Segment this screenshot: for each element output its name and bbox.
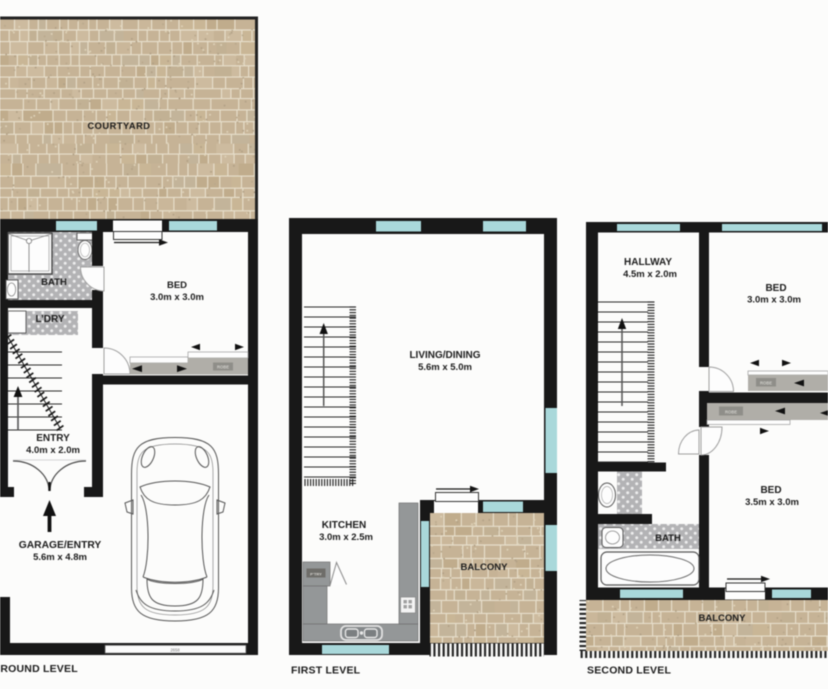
- svg-text:3.0m x 3.0m: 3.0m x 3.0m: [150, 292, 204, 303]
- svg-text:KITCHEN: KITCHEN: [322, 520, 366, 531]
- svg-text:GROUND LEVEL: GROUND LEVEL: [0, 663, 78, 675]
- svg-text:BED: BED: [760, 485, 781, 496]
- svg-text:BATH: BATH: [655, 533, 681, 544]
- svg-text:P’TRY: P’TRY: [310, 572, 322, 577]
- svg-text:BED: BED: [765, 283, 786, 294]
- svg-text:COURTYARD: COURTYARD: [87, 121, 150, 131]
- svg-text:ROBE: ROBE: [217, 365, 229, 370]
- svg-text:ROBE: ROBE: [725, 410, 737, 415]
- svg-text:BALCONY: BALCONY: [699, 613, 747, 624]
- svg-text:ENTRY: ENTRY: [36, 433, 70, 444]
- svg-text:GARAGE/ENTRY: GARAGE/ENTRY: [19, 540, 102, 551]
- svg-text:2658: 2658: [170, 648, 180, 653]
- svg-text:5.6m x 5.0m: 5.6m x 5.0m: [418, 362, 472, 373]
- svg-text:ROBE: ROBE: [760, 381, 772, 386]
- svg-text:3.0m x 2.5m: 3.0m x 2.5m: [319, 532, 373, 543]
- svg-text:SECOND LEVEL: SECOND LEVEL: [587, 665, 671, 677]
- svg-text:4.0m x 2.0m: 4.0m x 2.0m: [26, 445, 80, 456]
- svg-text:4.5m x 2.0m: 4.5m x 2.0m: [623, 269, 677, 280]
- svg-text:3.5m x 3.0m: 3.5m x 3.0m: [745, 497, 799, 508]
- svg-text:BED: BED: [167, 280, 187, 291]
- svg-text:L’DRY: L’DRY: [35, 314, 64, 325]
- svg-text:5.6m x 4.8m: 5.6m x 4.8m: [33, 552, 87, 563]
- svg-text:3.0m x 3.0m: 3.0m x 3.0m: [747, 295, 801, 306]
- svg-text:BALCONY: BALCONY: [461, 562, 509, 573]
- svg-text:BATH: BATH: [41, 277, 67, 288]
- svg-text:LIVING/DINING: LIVING/DINING: [409, 350, 480, 361]
- svg-text:HALLWAY: HALLWAY: [624, 257, 672, 268]
- svg-text:FIRST LEVEL: FIRST LEVEL: [291, 665, 361, 677]
